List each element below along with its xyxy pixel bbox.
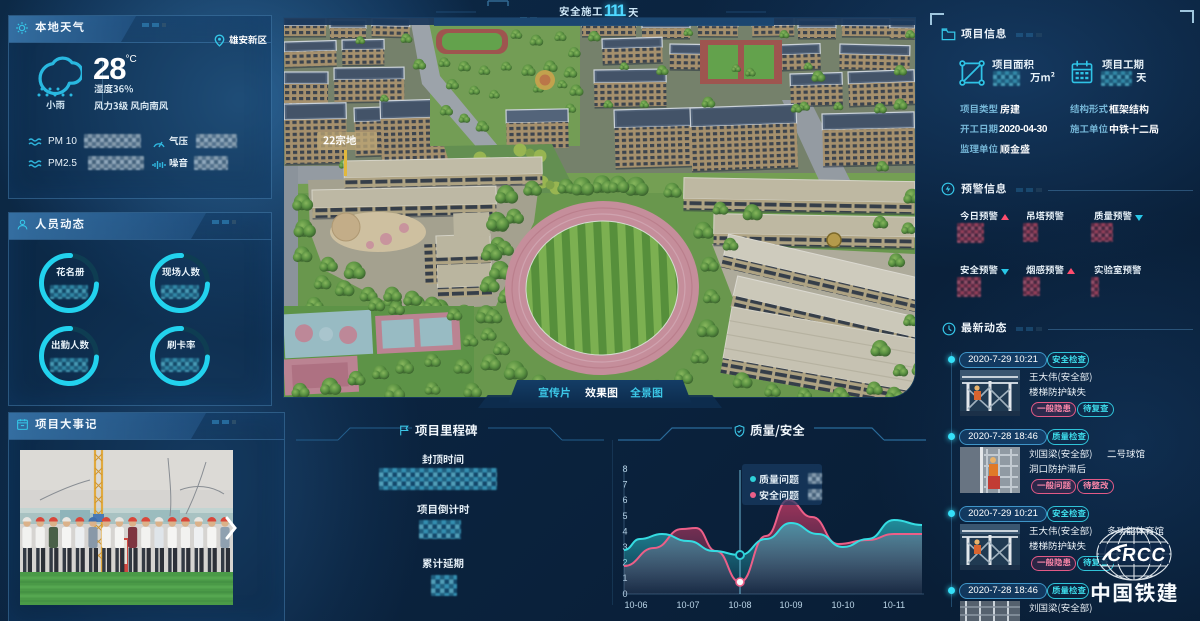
- svg-text:10-06: 10-06: [624, 600, 647, 610]
- svg-text:10-07: 10-07: [676, 600, 699, 610]
- svg-text:6: 6: [622, 495, 627, 505]
- svg-text:10-08: 10-08: [728, 600, 751, 610]
- svg-text:10-11: 10-11: [883, 600, 905, 610]
- svg-text:10-09: 10-09: [779, 600, 802, 610]
- svg-text:8: 8: [622, 464, 627, 474]
- svg-text:10-10: 10-10: [831, 600, 854, 610]
- svg-text:CRCC: CRCC: [1106, 545, 1168, 566]
- svg-text:7: 7: [622, 480, 627, 490]
- svg-text:5: 5: [622, 511, 627, 521]
- svg-text:4: 4: [622, 526, 627, 536]
